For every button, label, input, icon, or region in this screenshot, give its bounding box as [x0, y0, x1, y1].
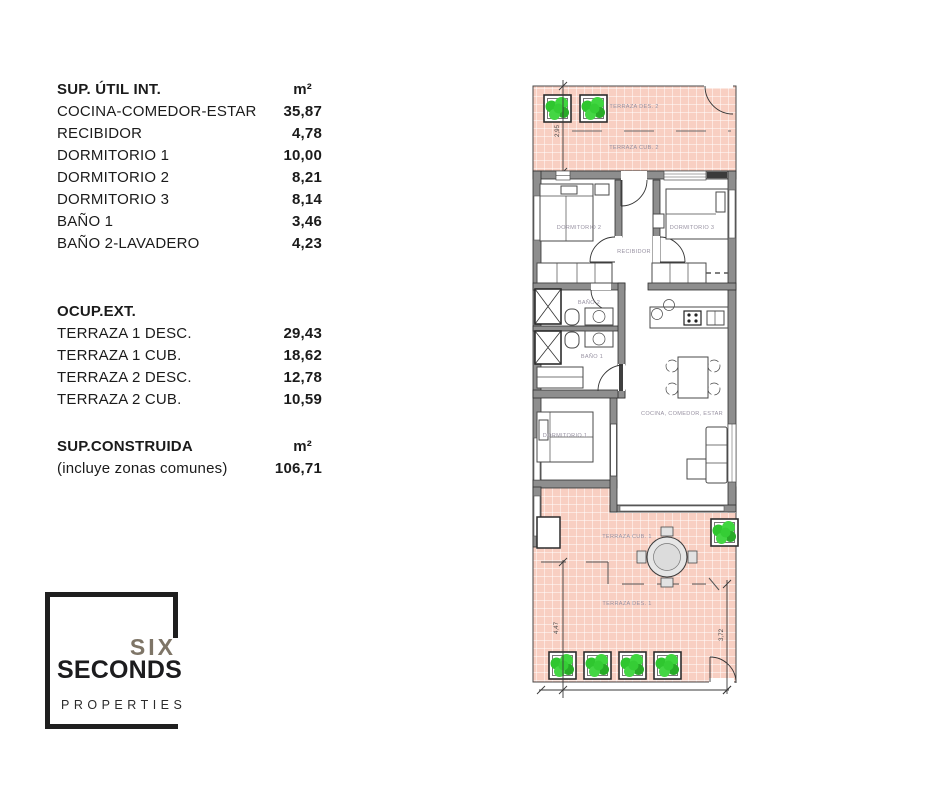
row-value: 29,43 — [283, 325, 322, 342]
table-header: SUP.CONSTRUIDA m² — [57, 435, 322, 457]
label-bano-2: BAÑO 2 — [578, 299, 600, 306]
logo-word-properties: PROPERTIES — [61, 698, 186, 712]
table-title: SUP.CONSTRUIDA — [57, 438, 193, 455]
row-value: 4,23 — [292, 235, 322, 252]
table-row: TERRAZA 1 DESC.29,43 — [57, 322, 322, 344]
row-label: TERRAZA 1 CUB. — [57, 347, 182, 364]
plant-icon — [580, 95, 607, 122]
table-sup-construida: SUP.CONSTRUIDA m² (incluye zonas comunes… — [57, 435, 322, 479]
dim-value: 2,95 — [554, 124, 561, 137]
label-dormitorio-2: DORMITORIO 2 — [557, 225, 602, 231]
table-header: OCUP.EXT. — [57, 300, 322, 322]
table-title: OCUP.EXT. — [57, 303, 136, 320]
row-value: 8,21 — [292, 169, 322, 186]
label-terraza-cub-2: TERRAZA CUB. 2 — [609, 145, 659, 151]
row-label: RECIBIDOR — [57, 125, 142, 142]
row-value: 10,00 — [283, 147, 322, 164]
plant-icon — [619, 652, 646, 679]
label-dormitorio-3: DORMITORIO 3 — [670, 225, 715, 231]
row-value: 3,46 — [292, 213, 322, 230]
terrace-2: TERRAZA DES. 2 TERRAZA CUB. 2 2,95 — [533, 80, 736, 176]
table-row: (incluye zonas comunes)106,71 — [57, 457, 322, 479]
table-ocup-ext: OCUP.EXT. TERRAZA 1 DESC.29,43 TERRAZA 1… — [57, 300, 322, 410]
row-label: TERRAZA 1 DESC. — [57, 325, 192, 342]
table-row: TERRAZA 2 DESC.12,78 — [57, 366, 322, 388]
table-row: BAÑO 2-LAVADERO4,23 — [57, 232, 322, 254]
row-value: 8,14 — [292, 191, 322, 208]
table-header: SUP. ÚTIL INT. m² — [57, 78, 322, 100]
table-sup-util-int: SUP. ÚTIL INT. m² COCINA-COMEDOR-ESTAR35… — [57, 78, 322, 254]
page: SUP. ÚTIL INT. m² COCINA-COMEDOR-ESTAR35… — [0, 0, 940, 788]
dim-value: 3,72 — [718, 628, 725, 641]
row-label: COCINA-COMEDOR-ESTAR — [57, 103, 257, 120]
row-label: BAÑO 2-LAVADERO — [57, 235, 199, 252]
label-terraza-cub-1: TERRAZA CUB. 1 — [602, 534, 652, 540]
row-label: DORMITORIO 3 — [57, 191, 169, 208]
table-title: SUP. ÚTIL INT. — [57, 81, 161, 98]
table-row: DORMITORIO 110,00 — [57, 144, 322, 166]
row-label: (incluye zonas comunes) — [57, 460, 228, 477]
logo-word-seconds: SECONDS — [57, 656, 182, 685]
row-value: 4,78 — [292, 125, 322, 142]
plant-icon — [584, 652, 611, 679]
table-row: DORMITORIO 38,14 — [57, 188, 322, 210]
row-value: 10,59 — [283, 391, 322, 408]
label-cocina-comedor-estar: COCINA, COMEDOR, ESTAR — [641, 411, 723, 417]
unit-label: m² — [293, 438, 322, 455]
table-row: RECIBIDOR4,78 — [57, 122, 322, 144]
row-value: 106,71 — [275, 460, 322, 477]
label-terraza-des-1: TERRAZA DES. 1 — [602, 601, 651, 607]
label-recibidor: RECIBIDOR — [617, 249, 651, 255]
row-value: 35,87 — [283, 103, 322, 120]
table-row: TERRAZA 1 CUB.18,62 — [57, 344, 322, 366]
table-row: DORMITORIO 28,21 — [57, 166, 322, 188]
table-row: TERRAZA 2 CUB.10,59 — [57, 388, 322, 410]
label-terraza-des-2: TERRAZA DES. 2 — [609, 104, 658, 110]
logo-frame-right-segment — [173, 592, 178, 638]
row-label: DORMITORIO 1 — [57, 147, 169, 164]
plant-icon — [544, 95, 571, 122]
plant-icon — [654, 652, 681, 679]
plant-icon — [711, 519, 738, 546]
row-label: TERRAZA 2 DESC. — [57, 369, 192, 386]
label-bano-1: BAÑO 1 — [581, 353, 603, 360]
row-label: DORMITORIO 2 — [57, 169, 169, 186]
row-value: 12,78 — [283, 369, 322, 386]
label-dormitorio-1: DORMITORIO 1 — [543, 433, 588, 439]
unit-label: m² — [293, 81, 322, 98]
plant-icon — [549, 652, 576, 679]
table-row: BAÑO 13,46 — [57, 210, 322, 232]
row-value: 18,62 — [283, 347, 322, 364]
table-row: COCINA-COMEDOR-ESTAR35,87 — [57, 100, 322, 122]
row-label: TERRAZA 2 CUB. — [57, 391, 182, 408]
dim-value: 4,47 — [553, 621, 560, 634]
floor-plan: TERRAZA DES. 2 TERRAZA CUB. 2 2,95 — [525, 72, 750, 712]
row-label: BAÑO 1 — [57, 213, 113, 230]
six-seconds-logo: SIX SECONDS PROPERTIES — [45, 592, 178, 729]
